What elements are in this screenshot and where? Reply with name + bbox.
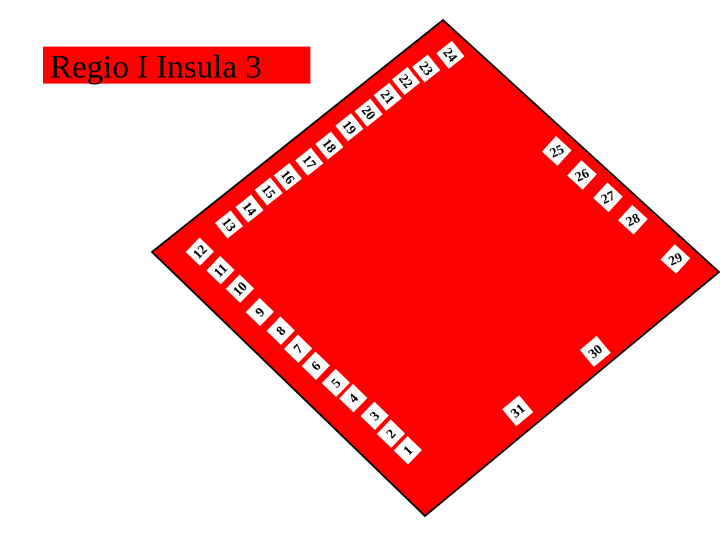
svg-text:Regio I Insula 3: Regio I Insula 3 <box>50 50 262 86</box>
